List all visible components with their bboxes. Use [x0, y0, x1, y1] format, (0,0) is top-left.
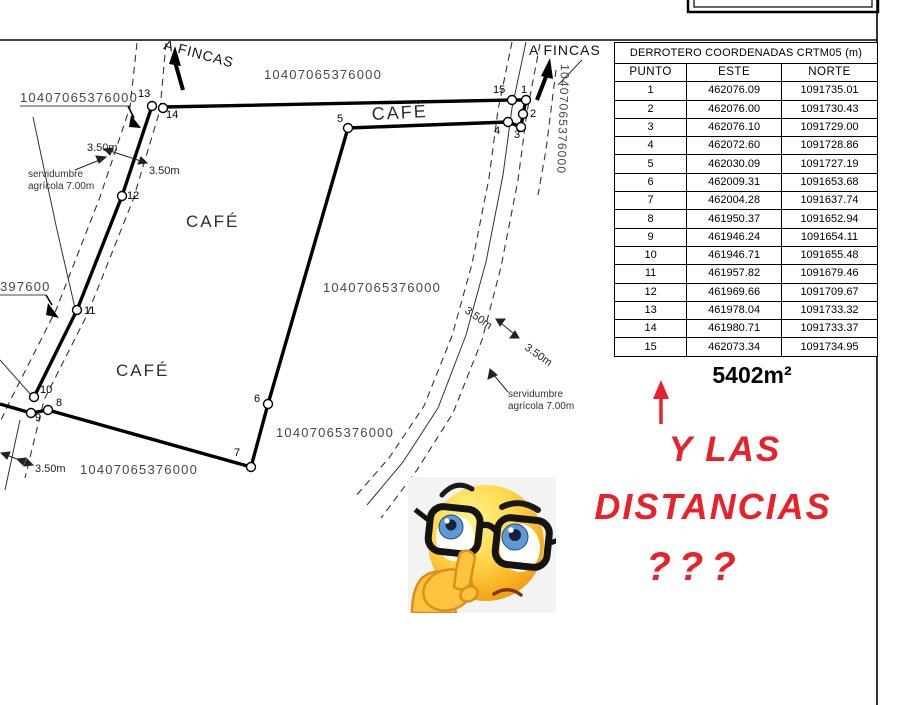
point-circle: [522, 96, 531, 105]
table-row: 4462072.601091728.86: [615, 137, 878, 155]
coordinate-table-body: 1462076.091091735.012462076.001091730.43…: [615, 82, 878, 356]
point-label: 12: [127, 190, 139, 202]
parcel-number-label: 10407065376000: [80, 462, 198, 477]
point-label: 13: [138, 88, 150, 100]
point-label: 8: [56, 397, 62, 409]
table-row: 1462076.091091735.01: [615, 82, 878, 100]
table-row: 12461969.661091709.67: [615, 283, 878, 301]
point-circle: [247, 463, 256, 472]
column-header-norte: NORTE: [782, 64, 878, 82]
apn-leader-topleft: [20, 106, 141, 128]
point-circle: [344, 124, 353, 133]
table-row: 8461950.371091652.94: [615, 210, 878, 228]
left-road: [0, 43, 166, 490]
point-label: 9: [35, 412, 41, 424]
easement-label-right-line1: servidumbre: [508, 389, 563, 400]
halfwidth-measure-right: [496, 319, 519, 338]
point-label: 11: [84, 305, 95, 317]
half-width-label: 3.50m: [35, 463, 66, 475]
crop-label: CAFÉ: [371, 101, 428, 124]
boundary-east-south: [0, 100, 526, 467]
half-width-label: 3.50m: [87, 142, 118, 154]
parcel-number-partial-label: 397600: [0, 279, 51, 294]
parcel-area-label: 5402m²: [620, 362, 884, 389]
annotation-line3: ???: [605, 545, 785, 590]
point-label: 10: [40, 384, 52, 396]
right-road-arrow: [537, 58, 553, 100]
table-row: 3462076.101091729.00: [615, 118, 878, 136]
table-row: 10461946.711091655.48: [615, 246, 878, 264]
point-label: 2: [530, 108, 536, 120]
table-row: 15462073.341091734.95: [615, 338, 878, 356]
table-row: 6462009.311091653.68: [615, 173, 878, 191]
point-circle: [148, 102, 157, 111]
table-row: 2462076.001091730.43: [615, 100, 878, 118]
table-row: 7462004.281091637.74: [615, 192, 878, 210]
point-circle: [118, 192, 127, 201]
point-circle: [504, 118, 513, 127]
parcel-number-label: 10407065376000: [323, 280, 441, 295]
annotation-line1: Y LAS: [640, 430, 810, 470]
table-row: 13461978.041091733.32: [615, 301, 878, 319]
parcel-boundary: [0, 100, 526, 467]
point-circle: [519, 110, 528, 119]
point-label: 3: [514, 129, 520, 141]
road-destination-label-left: A FINCAS: [162, 36, 235, 70]
parcel-number-label: 10407065376000: [264, 67, 382, 82]
column-header-punto: PUNTO: [615, 64, 687, 82]
survey-plan-page: 1 2 3 4 5 6 7 8 9 10 11 12 13 14 15 A FI…: [0, 0, 899, 705]
parcel-number-label: 10407065376000: [20, 90, 138, 105]
parcel-number-label-vertical: 10407065376000: [554, 64, 572, 175]
easement-label-left-line1: servidumbre: [28, 169, 83, 180]
column-header-este: ESTE: [687, 64, 782, 82]
point-circle: [508, 96, 517, 105]
title-block: [688, 0, 878, 12]
annotation-line2: DISTANCIAS: [563, 486, 863, 528]
point-label: 5: [337, 113, 343, 125]
table-row: 5462030.091091727.19: [615, 155, 878, 173]
table-title-row: DERROTERO COORDENADAS CRTM05 (m): [615, 43, 878, 64]
point-label: 14: [166, 109, 178, 121]
point-labels: 1 2 3 4 5 6 7 8 9 10 11 12 13 14 15: [35, 84, 536, 459]
coordinate-table-head: DERROTERO COORDENADAS CRTM05 (m) PUNTO E…: [615, 43, 878, 82]
boundary-north: [163, 100, 526, 107]
point-label: 7: [234, 447, 240, 459]
point-circle: [44, 406, 53, 415]
table-row: 14461980.711091733.37: [615, 320, 878, 338]
easement-arrow-right: [488, 369, 508, 392]
apn-leader-397600: [0, 295, 59, 318]
point-label: 1: [521, 84, 527, 96]
point-circle: [30, 393, 39, 402]
point-label: 6: [254, 393, 260, 405]
halfwidth-measure-bottomleft: [1, 452, 33, 466]
crop-label: CAFÉ: [116, 361, 169, 380]
half-width-label: 3.50m: [462, 305, 494, 332]
road-destination-label-right: A FINCAS: [529, 42, 601, 58]
coordinate-table: DERROTERO COORDENADAS CRTM05 (m) PUNTO E…: [614, 42, 878, 357]
table-row: 9461946.241091654.11: [615, 228, 878, 246]
leader-thin-left: [0, 360, 32, 396]
point-circle: [73, 306, 82, 315]
half-width-label: 3.50m: [149, 165, 180, 177]
crop-label: CAFÉ: [186, 212, 239, 231]
easement-label-left-line2: agrícola 7.00m: [28, 181, 94, 192]
half-width-label: 3.50m: [522, 342, 554, 369]
parcel-number-label: 10407065376000: [276, 425, 394, 440]
thinking-emoji-image: [408, 477, 556, 613]
table-row: 11461957.821091679.46: [615, 265, 878, 283]
point-label: 4: [494, 125, 500, 137]
table-header-row: PUNTO ESTE NORTE: [615, 64, 878, 82]
table-title: DERROTERO COORDENADAS CRTM05 (m): [615, 43, 878, 64]
point-label: 15: [493, 84, 505, 96]
point-circle: [264, 400, 273, 409]
easement-label-right-line2: agrícola 7.00m: [508, 401, 574, 412]
